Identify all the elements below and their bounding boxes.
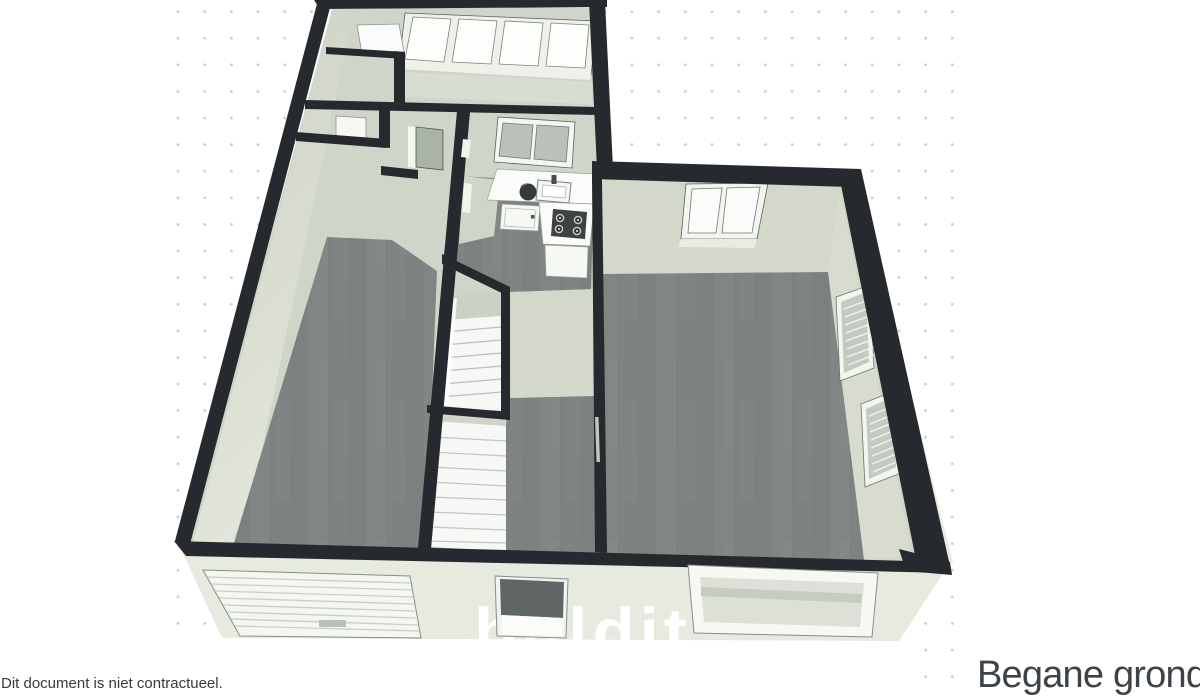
svg-text:Begane grond: Begane grond bbox=[977, 654, 1200, 696]
svg-text:Dit document is niet contractu: Dit document is niet contractueel. bbox=[1, 675, 223, 692]
